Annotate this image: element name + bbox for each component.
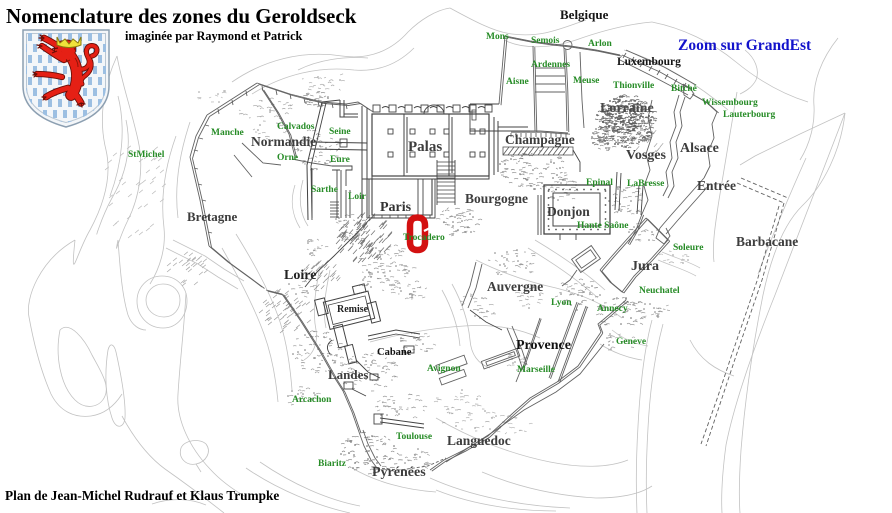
svg-text:Lyon: Lyon: [551, 298, 572, 308]
svg-text:Palas: Palas: [408, 139, 442, 155]
svg-text:Loir: Loir: [348, 192, 367, 202]
svg-text:Meuse: Meuse: [573, 76, 599, 86]
svg-text:Auvergne: Auvergne: [487, 279, 543, 294]
svg-text:Epinal: Epinal: [586, 178, 613, 188]
svg-text:Provence: Provence: [516, 338, 571, 353]
svg-text:Avignon: Avignon: [427, 364, 461, 374]
svg-text:Luxembourg: Luxembourg: [617, 56, 681, 68]
svg-text:Soleure: Soleure: [673, 243, 703, 253]
svg-text:Loire: Loire: [284, 268, 316, 283]
svg-text:Belgique: Belgique: [560, 7, 609, 22]
svg-text:Arcachon: Arcachon: [292, 395, 332, 405]
svg-text:Ardennes: Ardennes: [531, 60, 570, 70]
svg-text:Lorraine: Lorraine: [600, 101, 654, 116]
svg-text:Seine: Seine: [329, 127, 351, 137]
svg-text:Arlon: Arlon: [588, 39, 612, 49]
svg-text:Landes: Landes: [328, 367, 368, 382]
svg-text:Lauterbourg: Lauterbourg: [723, 110, 776, 120]
svg-text:Alsace: Alsace: [680, 141, 719, 156]
svg-text:Donjon: Donjon: [547, 204, 590, 219]
svg-text:Plan de Jean-Michel Rudrauf et: Plan de Jean-Michel Rudrauf et Klaus Tru…: [5, 488, 279, 503]
svg-text:Paris: Paris: [380, 200, 412, 215]
svg-text:Entrée: Entrée: [697, 178, 736, 193]
svg-text:Nomenclature des zones du Gero: Nomenclature des zones du Geroldseck: [6, 4, 357, 28]
svg-text:Pyrénées: Pyrénées: [372, 465, 426, 480]
svg-text:Jura: Jura: [631, 259, 659, 274]
svg-text:Normandie: Normandie: [251, 134, 316, 149]
svg-text:Bretagne: Bretagne: [187, 209, 238, 224]
svg-text:Neuchatel: Neuchatel: [639, 286, 680, 296]
svg-text:Eure: Eure: [330, 155, 350, 165]
svg-text:Languedoc: Languedoc: [447, 433, 511, 448]
svg-text:LaBresse: LaBresse: [627, 179, 664, 189]
svg-text:Bitché: Bitché: [671, 84, 697, 94]
svg-text:Vosges: Vosges: [626, 148, 666, 163]
svg-text:imaginée par Raymond et Patric: imaginée par Raymond et Patrick: [125, 29, 303, 43]
svg-text:Remise: Remise: [337, 304, 369, 315]
svg-text:Semois: Semois: [531, 36, 560, 46]
svg-text:Geneve: Geneve: [616, 337, 646, 347]
svg-text:Wissembourg: Wissembourg: [702, 98, 758, 108]
svg-text:Mons: Mons: [486, 32, 509, 42]
svg-text:Annecy: Annecy: [597, 304, 628, 314]
svg-text:Barbacane: Barbacane: [736, 234, 798, 249]
svg-text:Manche: Manche: [211, 128, 244, 138]
svg-text:Toulouse: Toulouse: [396, 432, 432, 442]
svg-text:Thionville: Thionville: [613, 81, 654, 91]
svg-text:Sarthe: Sarthe: [311, 185, 338, 195]
svg-text:Orne: Orne: [277, 153, 298, 163]
svg-text:Trocadero: Trocadero: [403, 233, 445, 243]
svg-text:StMichel: StMichel: [128, 150, 165, 160]
svg-text:Aisne: Aisne: [506, 77, 529, 87]
svg-text:Champagne: Champagne: [505, 132, 575, 147]
svg-text:Biaritz: Biaritz: [318, 459, 347, 469]
svg-text:Bourgogne: Bourgogne: [465, 191, 528, 206]
svg-text:Hante Saône: Hante Saône: [577, 221, 628, 231]
svg-text:Marseille: Marseille: [517, 365, 555, 375]
svg-text:Zoom sur GrandEst: Zoom sur GrandEst: [678, 37, 812, 54]
svg-text:Calvados: Calvados: [277, 122, 315, 132]
svg-text:Cabane: Cabane: [377, 347, 412, 358]
